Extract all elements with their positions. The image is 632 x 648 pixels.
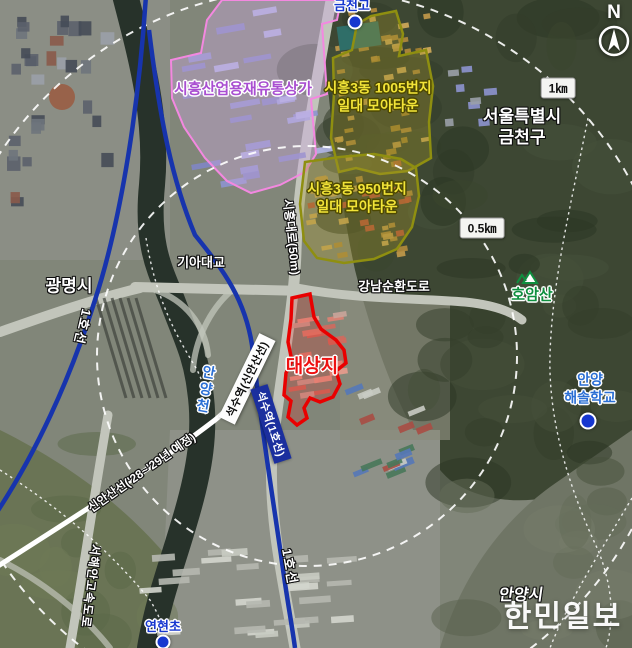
north-arrow-icon (597, 24, 631, 58)
label-distribution-complex: 시흥산업용재유통상가 (174, 81, 312, 100)
label-kia-bridge: 기아대교 (177, 255, 225, 271)
north-compass: N (594, 2, 632, 63)
north-label: N (594, 2, 632, 24)
marker-anyang-haesol-school (580, 413, 597, 430)
marker-yeonhyeon-elementary (156, 635, 171, 648)
satellite-map: 금천고 서울특별시 금천구 1㎞ 0.5㎞ 광명시 기아대교 시흥대로(50m)… (0, 0, 632, 648)
scale-label-05km: 0.5㎞ (460, 218, 505, 239)
marker-geumcheon-high-school (348, 15, 363, 30)
label-moatown-950: 시흥3동 950번지 일대 모아타운 (307, 181, 406, 216)
mountain-icon (513, 269, 541, 285)
label-hoam-mountain: 호암산 (511, 287, 552, 306)
scale-label-1km: 1㎞ (541, 78, 576, 99)
label-target-site: 대상지 (286, 355, 338, 379)
watermark-hanmin-ilbo: 한민일보 (504, 598, 622, 636)
label-moatown-1005: 시흥3동 1005번지 일대 모아타운 (324, 80, 431, 115)
label-gangnam-beltway: 강남순환도로 (358, 279, 430, 295)
label-yeonhyeon-elementary: 연현초 (145, 619, 181, 635)
label-anyang-haesol-school: 안양 해솔학교 (564, 372, 616, 407)
label-gwangmyeong-city: 광명시 (46, 275, 93, 296)
label-seoul-geumcheongu: 서울특별시 금천구 (483, 106, 561, 149)
label-geumcheon-high-school: 금천고 (334, 0, 370, 14)
